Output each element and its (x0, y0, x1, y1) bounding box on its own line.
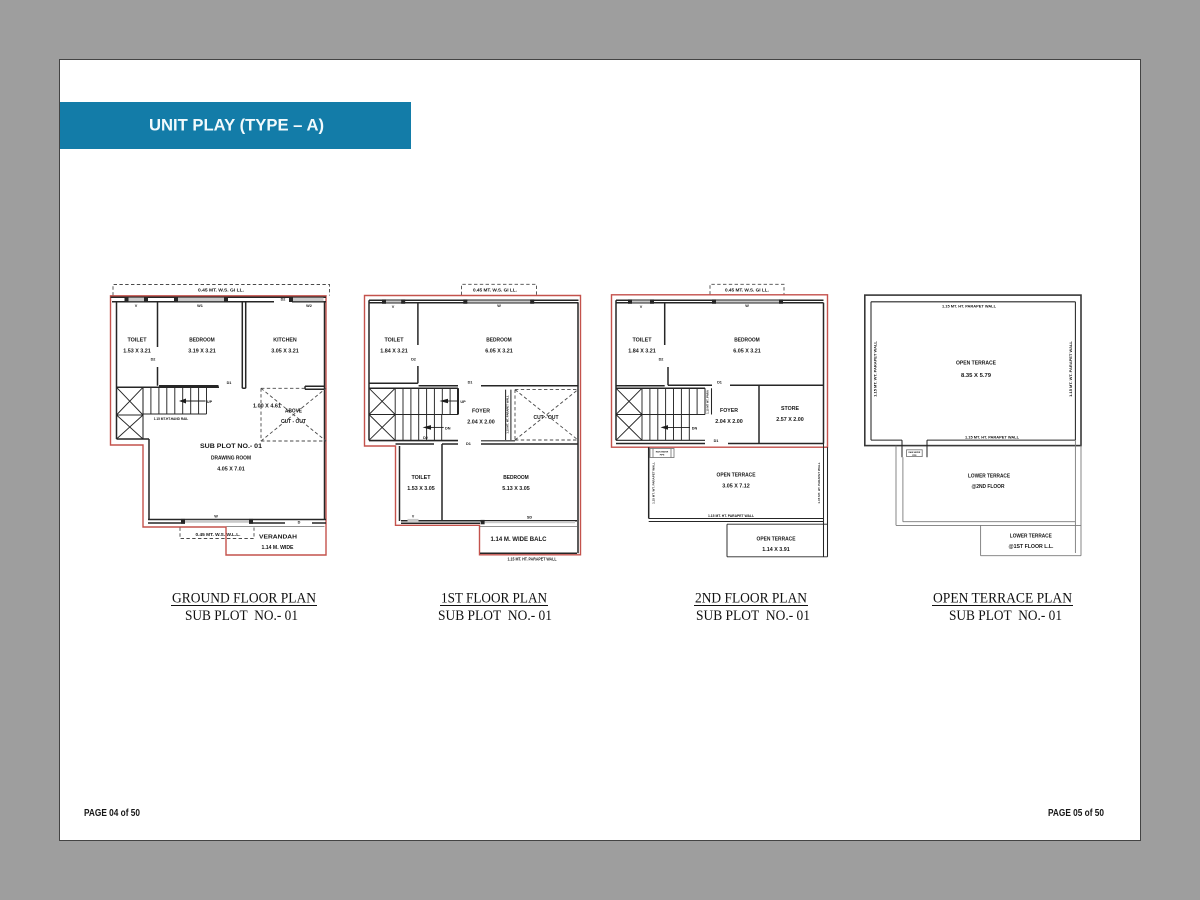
svg-text:1.15 MT. HT. PARAPET WALL: 1.15 MT. HT. PARAPET WALL (817, 462, 821, 503)
svg-text:2ND FLOOR PLAN: 2ND FLOOR PLAN (695, 590, 807, 607)
svg-text:OPEN TERRACE: OPEN TERRACE (956, 361, 996, 367)
svg-text:PAGE 04 of 50: PAGE 04 of 50 (84, 807, 140, 819)
svg-text:V: V (392, 305, 395, 309)
svg-text:UP: UP (207, 400, 213, 404)
svg-text:TOILET: TOILET (633, 338, 653, 344)
svg-text:VERANDAH: VERANDAH (259, 535, 297, 541)
svg-text:PIPE: PIPE (912, 455, 917, 457)
svg-text:D1: D1 (227, 381, 232, 385)
svg-text:SUB PLOT NO.- 01: SUB PLOT NO.- 01 (185, 607, 298, 624)
svg-text:D2: D2 (151, 358, 156, 362)
svg-text:CUT - OUT: CUT - OUT (534, 415, 559, 421)
svg-text:BEDROOM: BEDROOM (734, 338, 760, 344)
svg-text:W: W (745, 304, 749, 308)
svg-text:1.15 MT. HT. PARAPET WALL: 1.15 MT. HT. PARAPET WALL (965, 434, 1020, 439)
svg-text:W: W (214, 515, 218, 519)
svg-text:@1ST FLOOR L.L.: @1ST FLOOR L.L. (1009, 544, 1055, 550)
svg-text:1.84 X 3.21: 1.84 X 3.21 (628, 349, 656, 355)
svg-text:6.05 X 3.21: 6.05 X 3.21 (733, 349, 761, 355)
svg-text:8.35 X 5.79: 8.35 X 5.79 (961, 373, 991, 379)
svg-text:W: W (497, 304, 501, 308)
svg-text:BEDROOM: BEDROOM (503, 475, 529, 481)
svg-text:BEDROOM: BEDROOM (486, 338, 512, 344)
svg-text:KITCHEN: KITCHEN (273, 338, 297, 344)
svg-text:LOWER TERRACE: LOWER TERRACE (968, 474, 1010, 480)
svg-text:GROUND FLOOR PLAN: GROUND FLOOR PLAN (172, 590, 316, 607)
svg-text:3.05 X 7.12: 3.05 X 7.12 (722, 484, 750, 490)
svg-text:1.15 MT. WT. PARAPET WALL: 1.15 MT. WT. PARAPET WALL (873, 341, 878, 397)
svg-text:LOWER TERRACE: LOWER TERRACE (1010, 534, 1052, 540)
svg-text:OPEN TERRACE: OPEN TERRACE (717, 473, 757, 479)
svg-text:TOILET: TOILET (128, 338, 148, 344)
svg-text:1.14 M. WIDE: 1.14 M. WIDE (262, 545, 294, 551)
svg-text:FOYER: FOYER (472, 409, 490, 415)
svg-text:BEDROOM: BEDROOM (189, 338, 215, 344)
svg-text:0.45 MT. W.S. GI LL.: 0.45 MT. W.S. GI LL. (725, 287, 769, 292)
svg-text:4.05 X 7.01: 4.05 X 7.01 (217, 467, 245, 473)
svg-text:UNIT PLAY (TYPE – A): UNIT PLAY (TYPE – A) (149, 116, 324, 135)
svg-text:1.84 X 3.21: 1.84 X 3.21 (380, 349, 408, 355)
svg-text:2.57 X 2.00: 2.57 X 2.00 (776, 417, 804, 423)
svg-text:DN: DN (445, 427, 451, 431)
svg-text:UP: UP (460, 400, 466, 404)
svg-text:D: D (298, 521, 301, 525)
svg-text:TOILET: TOILET (385, 338, 405, 344)
svg-text:0.45 MT. W.S. GI LL.: 0.45 MT. W.S. GI LL. (473, 287, 517, 292)
svg-text:0.45 MT. W.S. W.L.L.: 0.45 MT. W.S. W.L.L. (196, 532, 241, 537)
svg-text:V: V (412, 515, 415, 519)
svg-text:D2: D2 (411, 358, 416, 362)
svg-text:DRAWING ROOM: DRAWING ROOM (211, 456, 251, 462)
svg-text:PAGE 05 of 50: PAGE 05 of 50 (1048, 807, 1104, 819)
svg-text:FOYER: FOYER (720, 408, 738, 414)
svg-text:D1: D1 (714, 439, 719, 443)
svg-text:1.53 X 3.21: 1.53 X 3.21 (123, 349, 151, 355)
svg-text:D2: D2 (423, 436, 428, 440)
svg-text:1.53 X 3.05: 1.53 X 3.05 (407, 486, 435, 492)
svg-text:1.15 MT. HT. PARAPET WALL: 1.15 MT. HT. PARAPET WALL (708, 513, 754, 518)
svg-text:OPEN TERRACE PLAN: OPEN TERRACE PLAN (933, 590, 1072, 607)
svg-text:RAIN WATER: RAIN WATER (908, 451, 920, 454)
svg-text:D2: D2 (281, 297, 286, 301)
svg-text:DN: DN (692, 427, 698, 431)
svg-text:1.15 MT. HT. PARAPET WALL: 1.15 MT. HT. PARAPET WALL (942, 304, 997, 309)
svg-text:D2: D2 (659, 358, 664, 362)
svg-text:1.15 MT. HT. PARAPET WALL: 1.15 MT. HT. PARAPET WALL (508, 557, 557, 562)
svg-text:V: V (640, 305, 643, 309)
svg-text:D1: D1 (466, 442, 471, 446)
svg-text:1.14 M. WIDE BALC: 1.14 M. WIDE BALC (491, 537, 548, 543)
svg-text:1.15 MT. WT. PARAPET WALL: 1.15 MT. WT. PARAPET WALL (652, 462, 656, 504)
svg-text:@2ND FLOOR: @2ND FLOOR (972, 484, 1005, 490)
svg-text:PIPE: PIPE (660, 455, 665, 457)
svg-text:SUB PLOT NO.- 01: SUB PLOT NO.- 01 (949, 607, 1062, 624)
svg-text:2.04 X 2.00: 2.04 X 2.00 (715, 419, 743, 425)
svg-text:STORE: STORE (781, 406, 800, 412)
svg-text:SUB PLOT NO.- 01: SUB PLOT NO.- 01 (696, 607, 810, 624)
svg-text:1.15 MT HT. PARA: 1.15 MT HT. PARA (706, 390, 710, 414)
svg-text:SUB PLOT NO.- 01: SUB PLOT NO.- 01 (438, 607, 552, 624)
svg-text:3.19 X 3.21: 3.19 X 3.21 (188, 349, 216, 355)
svg-text:OPEN TERRACE: OPEN TERRACE (757, 537, 797, 543)
svg-text:1.15 MT. WT. PARAPET WALL: 1.15 MT. WT. PARAPET WALL (1068, 341, 1073, 397)
svg-text:CUT - OUT: CUT - OUT (281, 419, 306, 425)
svg-text:1.15 MT. HT. PARAPET WALL: 1.15 MT. HT. PARAPET WALL (506, 395, 510, 434)
svg-text:1.15 MT.HT.HAND RAIL: 1.15 MT.HT.HAND RAIL (154, 417, 189, 421)
svg-text:5.13 X 3.05: 5.13 X 3.05 (502, 486, 530, 492)
svg-text:V: V (135, 304, 138, 308)
svg-text:0.45 MT. W.S. GI LL.: 0.45 MT. W.S. GI LL. (198, 287, 244, 292)
svg-text:W1: W1 (197, 304, 203, 308)
svg-text:2.04 X 2.00: 2.04 X 2.00 (467, 420, 495, 426)
svg-text:TOILET: TOILET (412, 475, 432, 481)
svg-text:D1: D1 (717, 381, 722, 385)
svg-text:6.05 X 3.21: 6.05 X 3.21 (485, 349, 513, 355)
svg-text:ABOVE: ABOVE (285, 409, 303, 415)
svg-text:D1: D1 (468, 381, 473, 385)
svg-text:1ST FLOOR PLAN: 1ST FLOOR PLAN (441, 590, 547, 607)
svg-text:RAIN WATER: RAIN WATER (656, 451, 669, 454)
svg-text:1.00 X 4.61: 1.00 X 4.61 (253, 404, 281, 410)
svg-text:W2: W2 (306, 304, 312, 308)
svg-text:SD: SD (527, 516, 533, 520)
svg-text:1.14 X 3.91: 1.14 X 3.91 (762, 547, 790, 553)
svg-text:SUB PLOT NO.- 01: SUB PLOT NO.- 01 (200, 443, 262, 450)
svg-text:3.05 X 3.21: 3.05 X 3.21 (271, 349, 299, 355)
